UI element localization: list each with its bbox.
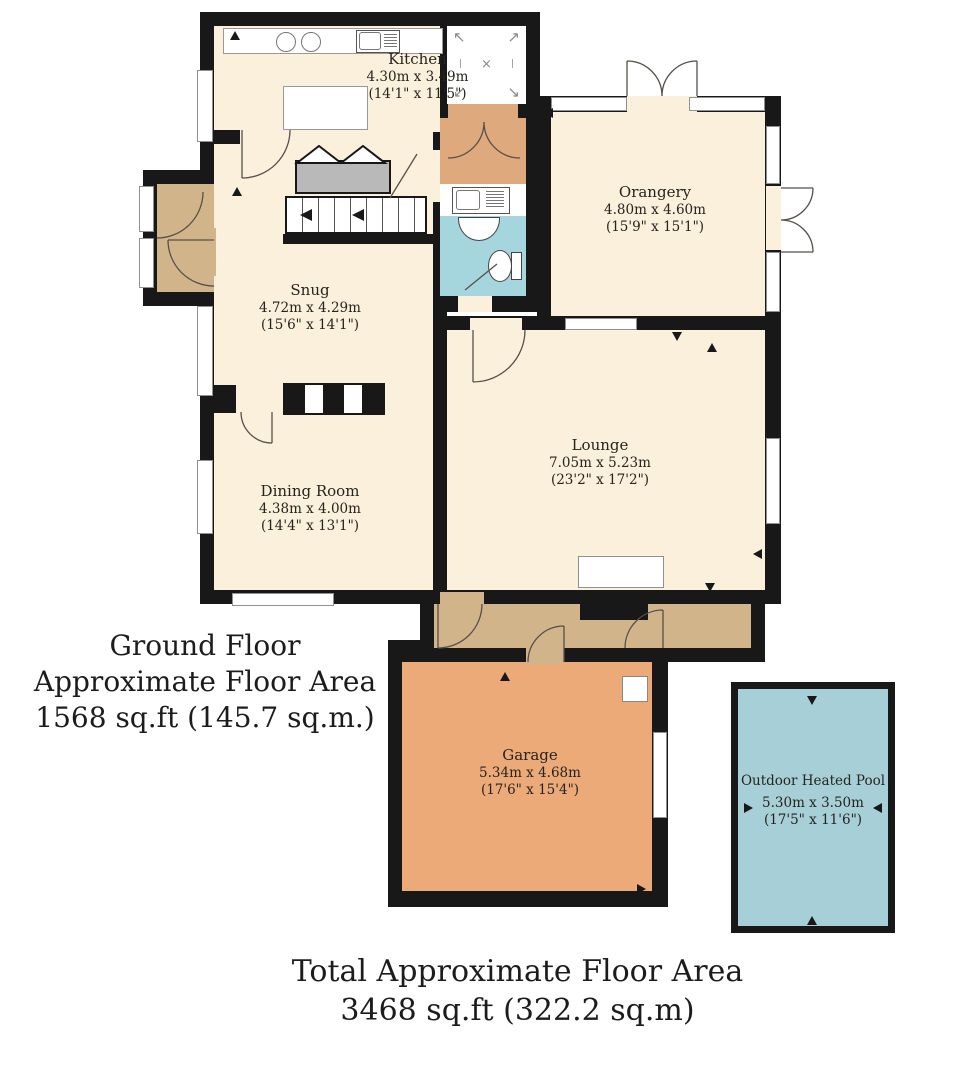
window [689,97,765,111]
room-dim-metric: 4.30m x 3.49m [330,69,505,86]
window [551,97,627,111]
total-area-caption: Total Approximate Floor Area 3468 sq.ft … [260,952,775,1030]
wall-segment [283,234,435,244]
internal-window [565,318,637,330]
room-name: Outdoor Heated Pool [738,772,888,791]
room-dim-imperial: (17'6" x 15'4") [435,782,625,799]
room-dim-imperial: (15'9" x 15'1") [560,219,750,236]
room-dim-metric: 5.30m x 3.50m [738,795,888,812]
room-name: Garage [435,746,625,765]
door-gap [458,296,492,312]
chimney-recess [344,385,362,413]
room-dim-metric: 5.34m x 4.68m [435,765,625,782]
toilet-bowl-icon [488,250,512,282]
stairs-landing [295,160,391,194]
window [766,438,780,524]
caption-line: Total Approximate Floor Area [260,952,775,991]
room-name: Snug [225,281,395,300]
floorplan-canvas: ↖ ↗ ↙ ↘ × | | [0,0,978,1080]
tick-icon: | [511,57,514,72]
room-name: Orangery [560,183,750,202]
caption-line: Ground Floor [10,628,400,664]
room-dim-imperial: (14'4" x 13'1") [215,518,405,535]
drainer-icon [384,33,397,49]
room-name: Dining Room [215,482,405,501]
room-dim-metric: 4.72m x 4.29m [225,300,395,317]
arrow-nw-icon: ↖ [453,30,466,45]
sink-bowl-icon [359,32,381,50]
orangery-label: Orangery 4.80m x 4.60m (15'9" x 15'1") [560,183,750,236]
caption-line: 1568 sq.ft (145.7 sq.m.) [10,700,400,736]
room-dim-imperial: (17'5" x 11'6") [738,812,888,829]
garage-label: Garage 5.34m x 4.68m (17'6" x 15'4") [435,746,625,799]
door-gap [627,96,697,112]
chimney-recess [305,385,323,413]
wall-segment [214,385,236,413]
room-name: Kitchen [330,50,505,69]
door-gap [415,150,440,202]
door-gap [448,104,518,120]
fireplace-recess [578,556,664,588]
room-dim-metric: 7.05m x 5.23m [505,455,695,472]
snug-label: Snug 4.72m x 4.29m (15'6" x 14'1") [225,281,395,334]
dining-room-label: Dining Room 4.38m x 4.00m (14'4" x 13'1"… [215,482,405,535]
caption-line: 3468 sq.ft (322.2 sq.m) [260,991,775,1030]
room-dim-metric: 4.38m x 4.00m [215,501,405,518]
window [232,593,334,606]
lounge-label: Lounge 7.05m x 5.23m (23'2" x 17'2") [505,436,695,489]
kitchen-label: Kitchen 4.30m x 3.49m (14'1" x 11'5") [330,50,505,103]
caption-line: Approximate Floor Area [10,664,400,700]
hob-ring-icon [301,32,321,52]
room-dim-imperial: (15'6" x 14'1") [225,317,395,334]
chimney-breast [283,383,385,415]
pool-label: Outdoor Heated Pool 5.30m x 3.50m (17'5"… [738,772,888,829]
garage-post [622,676,648,702]
ground-floor-caption: Ground Floor Approximate Floor Area 1568… [10,628,400,736]
wall-segment [214,130,240,144]
hob-ring-icon [276,32,296,52]
door-gap [766,186,781,250]
door-gap [198,228,216,276]
sink-bowl-icon [456,190,480,210]
door-gap [526,646,564,664]
wall-segment [580,604,648,620]
toilet-cistern-icon [511,252,522,280]
entry-vestibule-area [440,118,526,184]
arrow-ne-icon: ↗ [507,30,520,45]
room-dim-imperial: (14'1" x 11'5") [330,86,505,103]
window [197,460,213,534]
stairs-treads [285,196,427,234]
window [197,70,213,142]
arrow-se-icon: ↘ [507,85,520,100]
door-gap [440,592,484,604]
window [197,306,213,396]
window [766,126,780,184]
window [139,238,154,288]
window [653,732,667,818]
room-name: Lounge [505,436,695,455]
window [766,252,780,312]
room-dim-imperial: (23'2" x 17'2") [505,472,695,489]
window [139,186,154,232]
room-dim-metric: 4.80m x 4.60m [560,202,750,219]
drainer-icon [486,191,504,209]
door-gap [470,318,522,330]
